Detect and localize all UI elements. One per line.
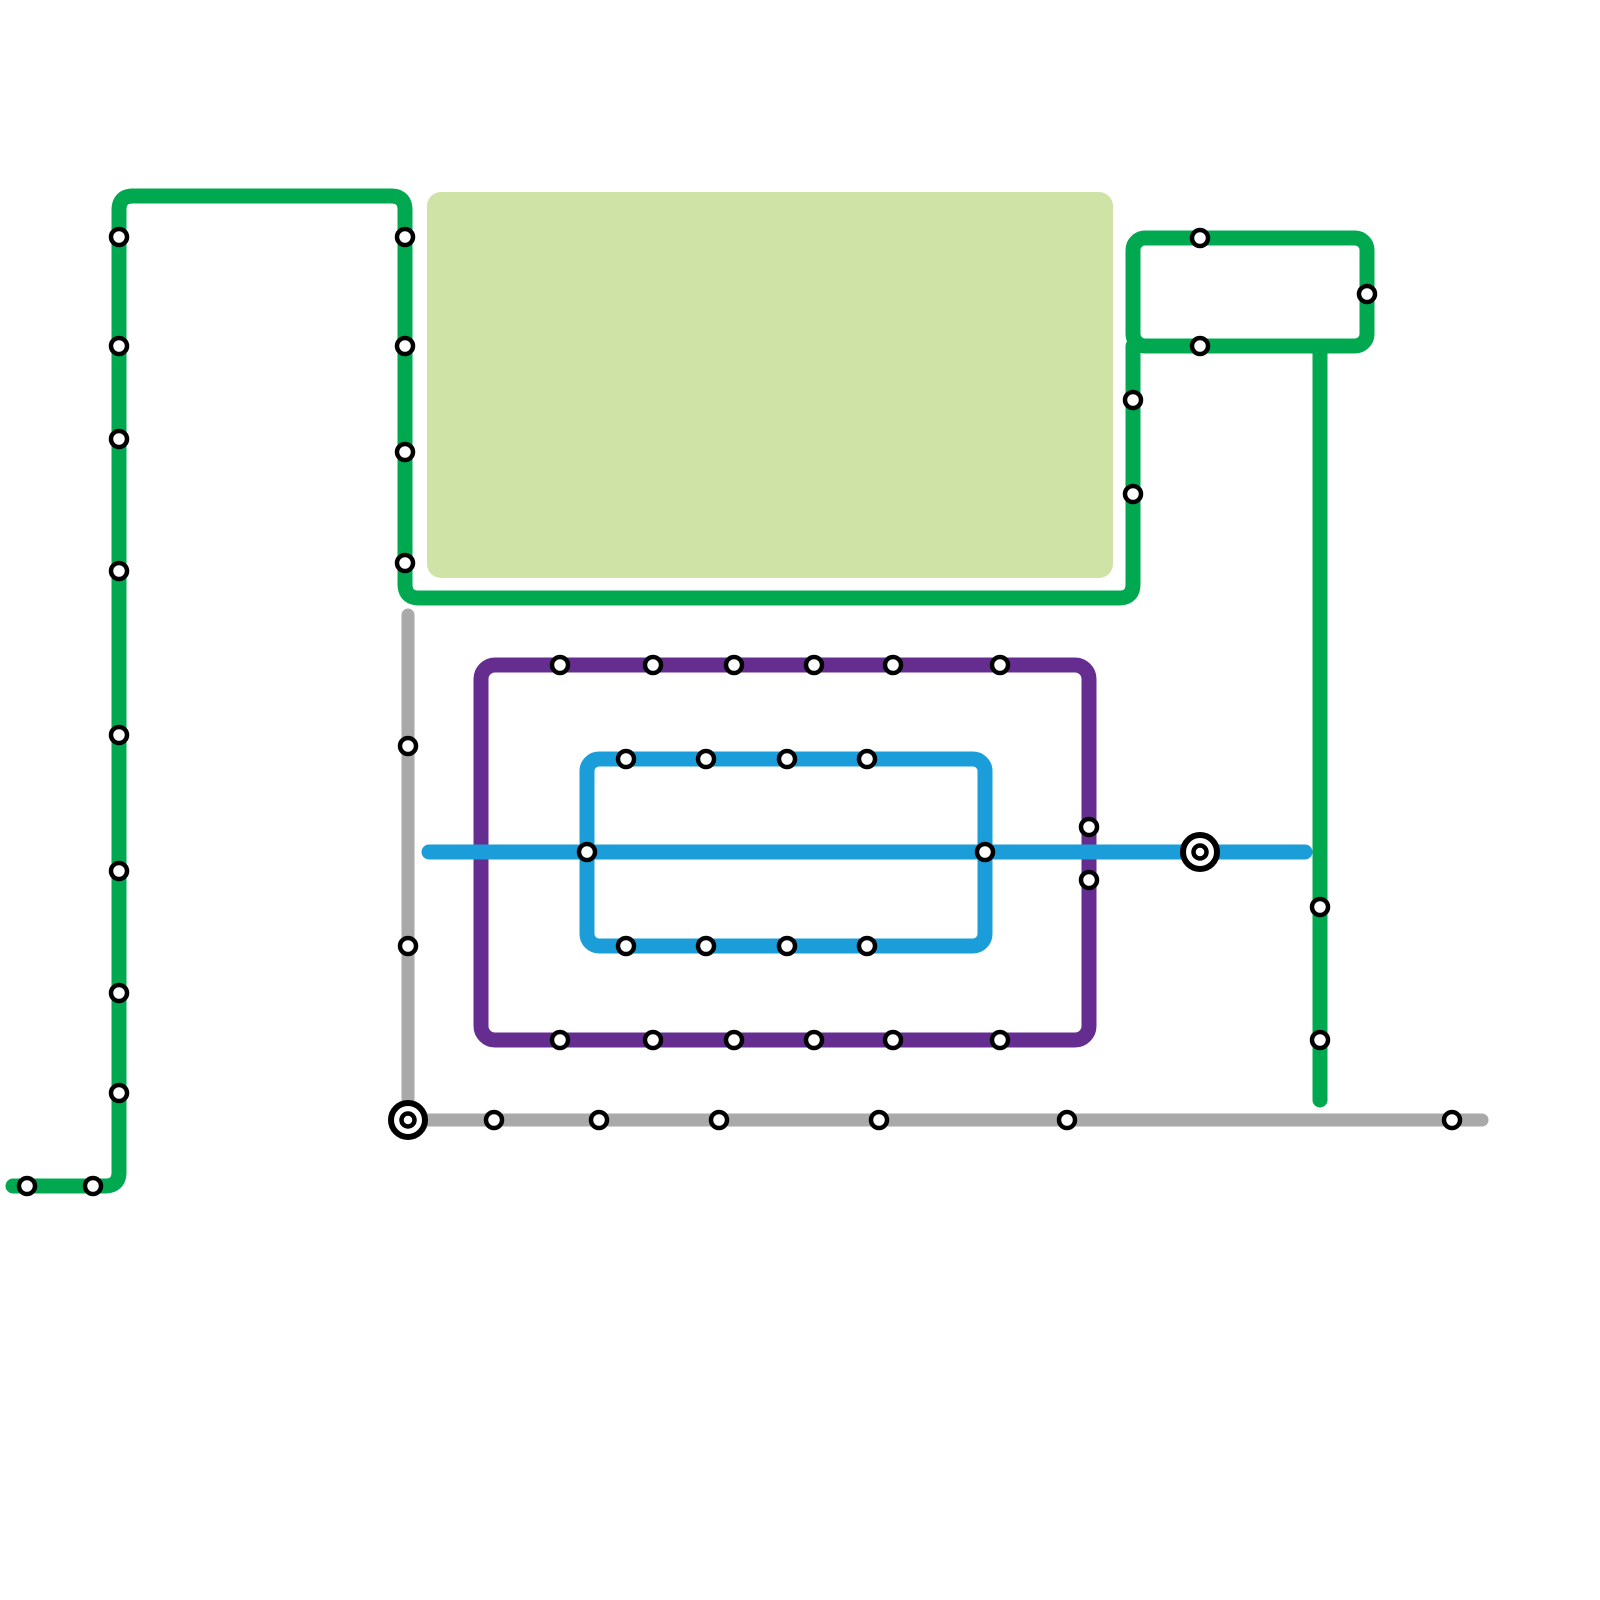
station-marker[interactable] <box>552 657 568 673</box>
station-marker[interactable] <box>711 1112 727 1128</box>
station-marker[interactable] <box>779 751 795 767</box>
station-marker[interactable] <box>400 738 416 754</box>
station-marker[interactable] <box>397 338 413 354</box>
station-marker[interactable] <box>1059 1112 1075 1128</box>
station-marker[interactable] <box>400 938 416 954</box>
interchange-marker-inner <box>402 1114 415 1127</box>
station-marker[interactable] <box>645 1032 661 1048</box>
metro-map <box>0 0 1600 1600</box>
station-marker[interactable] <box>645 657 661 673</box>
park-area <box>427 192 1113 578</box>
station-marker[interactable] <box>111 563 127 579</box>
station-marker[interactable] <box>1312 899 1328 915</box>
station-marker[interactable] <box>111 1085 127 1101</box>
station-marker[interactable] <box>1192 338 1208 354</box>
station-marker[interactable] <box>726 657 742 673</box>
station-marker[interactable] <box>397 444 413 460</box>
station-marker[interactable] <box>1359 286 1375 302</box>
station-marker[interactable] <box>779 938 795 954</box>
station-marker[interactable] <box>111 985 127 1001</box>
station-marker[interactable] <box>1125 392 1141 408</box>
station-marker[interactable] <box>1192 230 1208 246</box>
station-marker[interactable] <box>111 727 127 743</box>
station-marker[interactable] <box>698 938 714 954</box>
station-marker[interactable] <box>19 1178 35 1194</box>
station-marker[interactable] <box>1312 1032 1328 1048</box>
station-marker[interactable] <box>111 863 127 879</box>
station-marker[interactable] <box>111 229 127 245</box>
station-marker[interactable] <box>698 751 714 767</box>
station-marker[interactable] <box>885 657 901 673</box>
station-marker[interactable] <box>111 338 127 354</box>
station-marker[interactable] <box>591 1112 607 1128</box>
station-marker[interactable] <box>806 657 822 673</box>
station-marker[interactable] <box>726 1032 742 1048</box>
station-marker[interactable] <box>618 751 634 767</box>
station-marker[interactable] <box>806 1032 822 1048</box>
metro-map-canvas <box>0 0 1600 1600</box>
station-marker[interactable] <box>992 1032 1008 1048</box>
station-marker[interactable] <box>859 751 875 767</box>
station-marker[interactable] <box>552 1032 568 1048</box>
station-marker[interactable] <box>859 938 875 954</box>
station-marker[interactable] <box>486 1112 502 1128</box>
interchange-marker-inner <box>1194 846 1207 859</box>
station-marker[interactable] <box>992 657 1008 673</box>
station-marker[interactable] <box>618 938 634 954</box>
station-marker[interactable] <box>977 844 993 860</box>
line-green-loop <box>1133 238 1367 346</box>
station-marker[interactable] <box>85 1178 101 1194</box>
station-marker[interactable] <box>885 1032 901 1048</box>
station-marker[interactable] <box>397 555 413 571</box>
station-marker[interactable] <box>1444 1112 1460 1128</box>
station-marker[interactable] <box>1125 486 1141 502</box>
station-marker[interactable] <box>1081 872 1097 888</box>
station-marker[interactable] <box>397 229 413 245</box>
station-marker[interactable] <box>111 431 127 447</box>
station-marker[interactable] <box>1081 819 1097 835</box>
station-marker[interactable] <box>579 844 595 860</box>
station-marker[interactable] <box>871 1112 887 1128</box>
